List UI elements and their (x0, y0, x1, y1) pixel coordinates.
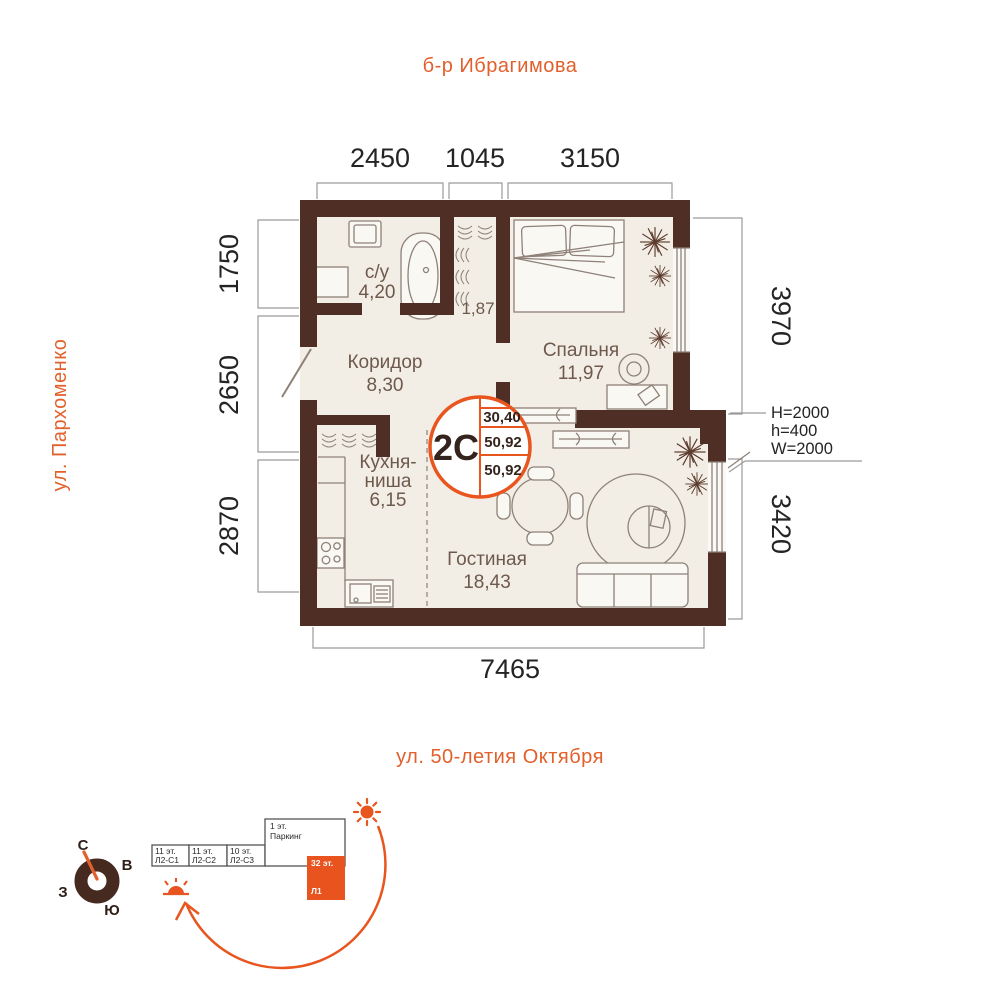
compass-north: С (78, 837, 89, 854)
dim-bottom: 7465 (480, 654, 540, 684)
street-label-left: ул. Пархоменко (49, 339, 71, 492)
window-spec-h: h=400 (771, 422, 817, 440)
apartment-badge: 2С 30,40 50,92 50,92 (430, 397, 530, 497)
site-block-3-name: Л2-С3 (230, 855, 254, 865)
label-kitchen-1: Кухня- (359, 452, 416, 473)
sun-icon (354, 799, 380, 825)
site-tower-floors: 32 эт. (311, 858, 333, 868)
label-bedroom: Спальня (543, 340, 619, 361)
floor-plan-canvas: б-р Ибрагимова ул. Пархоменко ул. 50-лет… (0, 0, 1000, 1000)
dim-left-2: 2650 (214, 355, 244, 415)
compass-west: З (58, 884, 67, 901)
area-corridor: 8,30 (367, 375, 404, 396)
area-bedroom: 11,97 (558, 363, 604, 384)
dim-left-1: 1750 (214, 234, 244, 294)
bedroom-window (673, 248, 690, 352)
label-corridor: Коридор (347, 352, 422, 373)
site-block-2-name: Л2-С2 (192, 855, 216, 865)
badge-value-1: 30,40 (483, 409, 521, 426)
dim-top-1: 2450 (350, 143, 410, 173)
dim-top-3: 3150 (560, 143, 620, 173)
badge-value-2: 50,92 (484, 434, 522, 451)
badge-value-3: 50,92 (484, 462, 522, 479)
label-bathroom: с/у (365, 262, 390, 283)
label-living: Гостиная (447, 549, 527, 570)
compass-east: В (122, 857, 133, 874)
floor-plan-page: б-р Ибрагимова ул. Пархоменко ул. 50-лет… (0, 0, 1000, 1000)
street-label-bottom: ул. 50-летия Октября (396, 746, 604, 768)
area-bathroom: 4,20 (359, 282, 396, 303)
compass-south: Ю (104, 902, 119, 919)
site-parking-floors: 1 эт. (270, 821, 287, 831)
site-parking-name: Паркинг (270, 831, 302, 841)
badge-type: 2С (433, 427, 479, 468)
site-tower-name: Л1 (311, 886, 322, 896)
area-living: 18,43 (463, 572, 511, 593)
dim-left-3: 2870 (214, 496, 244, 556)
window-spec-W: W=2000 (771, 440, 833, 458)
area-kitchen: 6,15 (370, 490, 407, 511)
dim-right-1: 3970 (766, 286, 796, 346)
dim-top-2: 1045 (445, 143, 505, 173)
street-label-top: б-р Ибрагимова (423, 55, 578, 77)
label-kitchen-2: ниша (365, 471, 412, 492)
window-spec-H: H=2000 (771, 404, 829, 422)
area-wardrobe: 1,87 (461, 299, 494, 318)
dim-right-2: 3420 (766, 494, 796, 554)
site-block-1-name: Л2-С1 (155, 855, 179, 865)
